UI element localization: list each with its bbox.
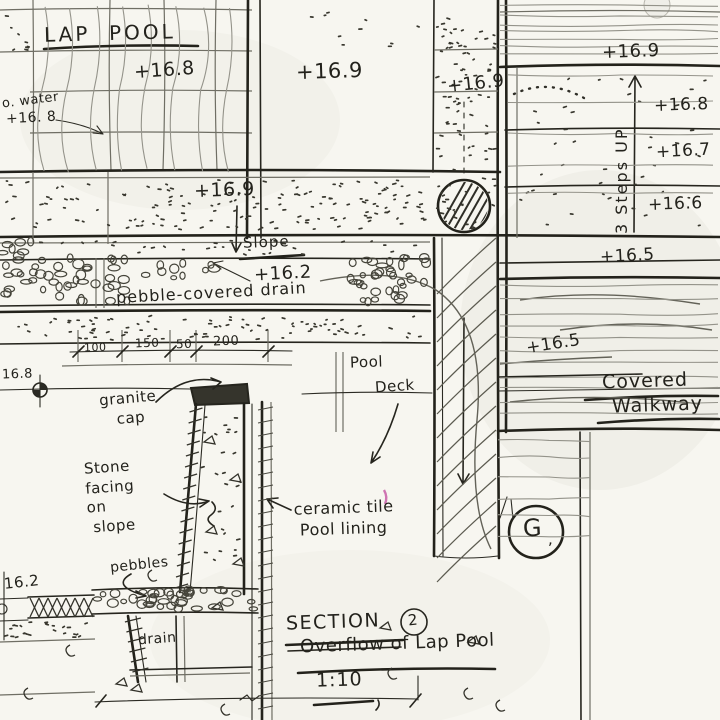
pool-deck-2: Deck <box>374 376 415 398</box>
grid-bubble-label: G <box>522 513 543 545</box>
dim-100: 100 <box>84 341 107 356</box>
stone-facing-note: Stone facing on slope <box>83 456 137 537</box>
dim-200: 200 <box>213 334 240 352</box>
step-level-3: +16.6 <box>648 192 703 216</box>
granite-cap-note: granite cap <box>98 387 158 431</box>
steps-note: 3 Steps UP <box>612 128 633 234</box>
walkway-level-a: +16.5 <box>599 244 655 269</box>
lap-pool-level: +16.8 <box>133 56 195 85</box>
pool-deck-1: Pool <box>350 352 384 373</box>
grid-bubble-suffix: , <box>548 530 553 550</box>
deck-level-c: +16.9 <box>194 177 256 204</box>
drain-note: drain <box>137 629 177 650</box>
overflow-water-level: +16. 8 <box>6 108 57 129</box>
walkway-name-1: Covered <box>602 368 689 396</box>
section-number: 2 <box>407 611 419 631</box>
dim-50: 50 <box>176 337 193 353</box>
datum-lower: 16.2 <box>3 571 40 594</box>
dim-150: 150 <box>135 336 160 352</box>
steps-top-level: +16.9 <box>602 39 660 64</box>
datum-upper: 16.8 <box>2 366 34 384</box>
step-level-1: +16.8 <box>654 93 709 117</box>
walkway-name-2: Walkway <box>612 391 704 419</box>
tile-note: ceramic tile Pool lining <box>293 496 394 541</box>
sketch-sheet: LAP POOL +16.8 o. water +16. 8 +16.9 +16… <box>0 0 720 720</box>
hole-punch <box>644 0 670 18</box>
scale-label: 1:10 <box>316 667 364 693</box>
lap-pool-label: LAP POOL <box>44 18 176 47</box>
deck-level-a: +16.9 <box>296 57 364 87</box>
slope-label: Slope <box>243 232 290 253</box>
step-level-2: +16.7 <box>655 139 711 164</box>
